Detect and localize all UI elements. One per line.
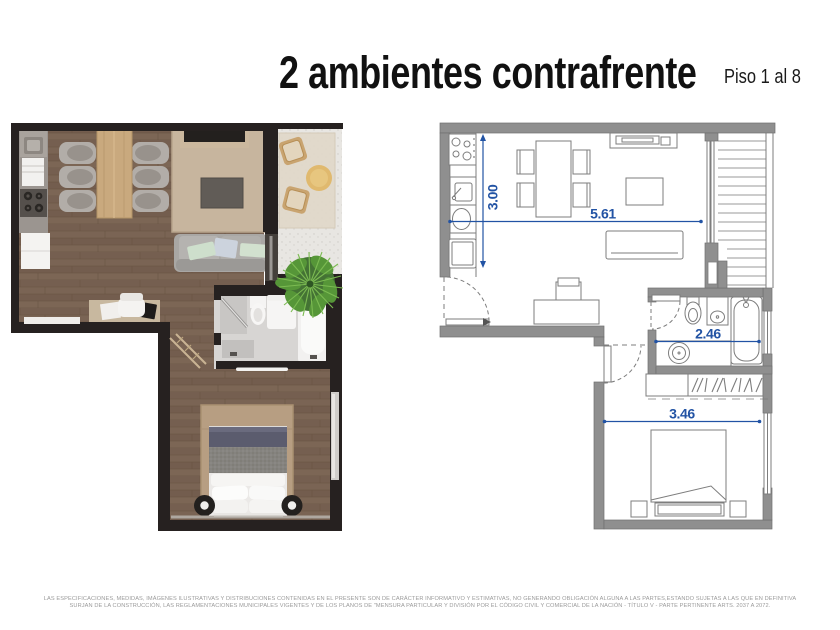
svg-text:3.46: 3.46 — [669, 406, 695, 422]
svg-text:2.46: 2.46 — [695, 326, 721, 342]
svg-text:5.61: 5.61 — [590, 206, 616, 222]
svg-text:3.00: 3.00 — [484, 184, 500, 210]
